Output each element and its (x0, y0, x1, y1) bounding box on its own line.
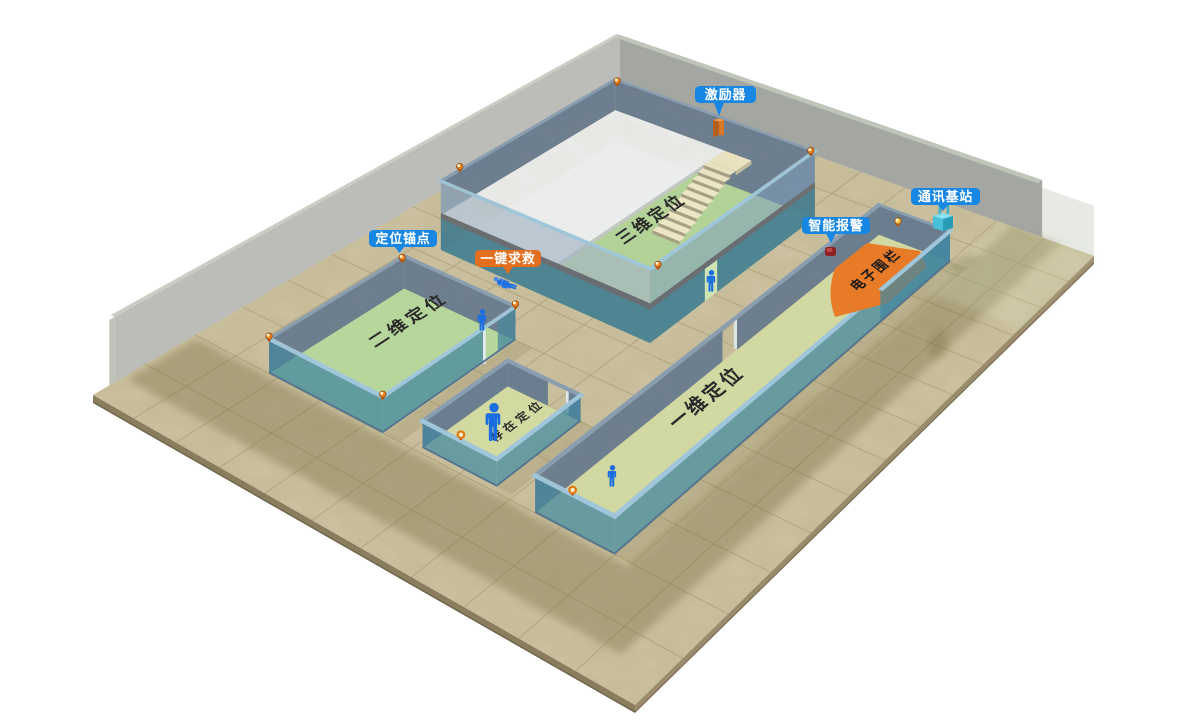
svg-text:一键求救: 一键求救 (480, 251, 535, 266)
svg-text:激励器: 激励器 (705, 87, 747, 102)
svg-text:定位锚点: 定位锚点 (374, 231, 430, 246)
svg-text:智能报警: 智能报警 (808, 218, 863, 233)
svg-text:通讯基站: 通讯基站 (918, 189, 973, 204)
